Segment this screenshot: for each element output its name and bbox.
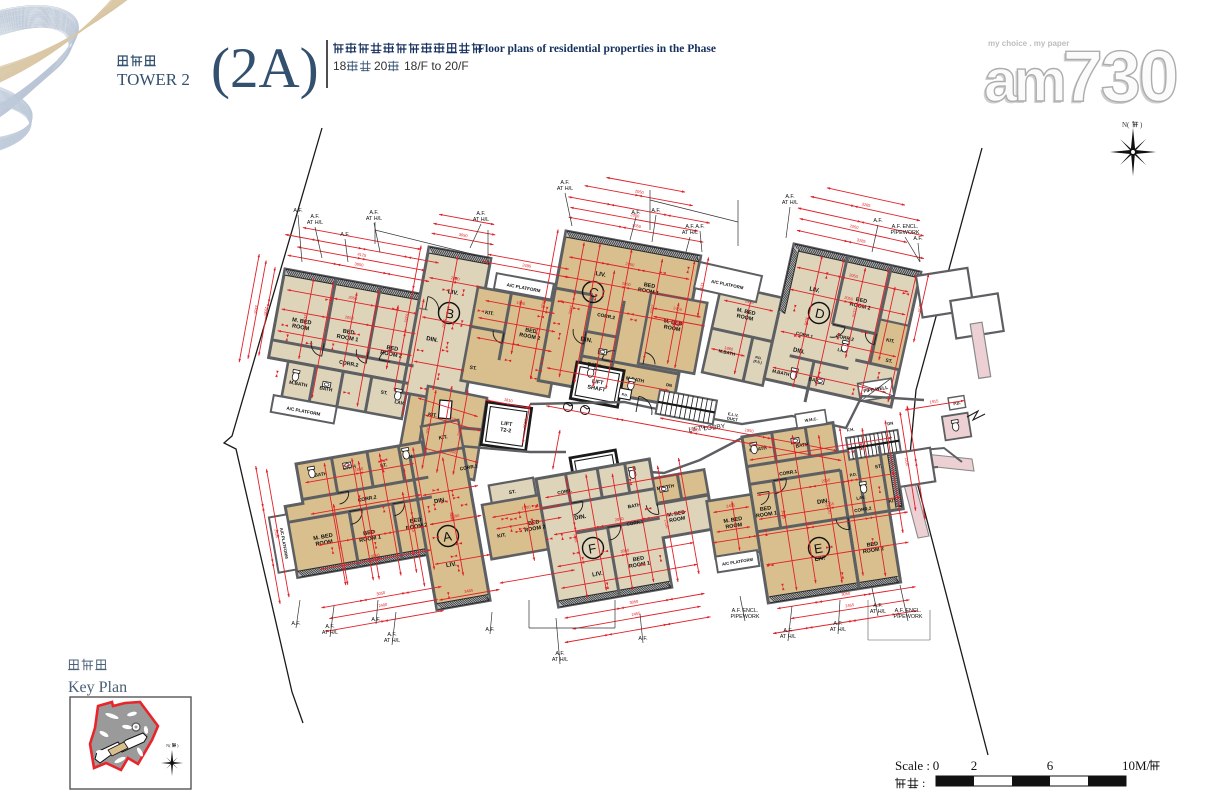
svg-text:2: 2 — [971, 758, 978, 773]
svg-text:A.F.: A.F. — [913, 236, 922, 242]
svg-text:Floor plans of residential pro: Floor plans of residential properties in… — [478, 43, 716, 55]
svg-text:N(: N( — [166, 743, 171, 748]
svg-text:AT H/L: AT H/L — [782, 200, 798, 206]
svg-text:DN: DN — [887, 420, 894, 426]
svg-text:AT H/L: AT H/L — [473, 217, 489, 223]
svg-text:A.F.: A.F. — [340, 232, 349, 238]
svg-text:(2A): (2A) — [211, 37, 319, 100]
svg-text:PIPEWORK: PIPEWORK — [730, 614, 759, 620]
svg-text:A.F.: A.F. — [695, 224, 704, 230]
svg-text:A.F.: A.F. — [873, 218, 882, 224]
svg-text:20: 20 — [374, 59, 388, 73]
svg-text:Key Plan: Key Plan — [68, 679, 127, 696]
svg-text:6: 6 — [1047, 758, 1054, 773]
svg-text:AT H/L: AT H/L — [870, 609, 886, 615]
svg-text:A.F.: A.F. — [631, 210, 640, 216]
svg-text:A.F.: A.F. — [293, 208, 302, 214]
svg-text:10M/: 10M/ — [1122, 758, 1151, 773]
svg-text:A.F.: A.F. — [651, 208, 660, 214]
svg-text:18: 18 — [333, 59, 347, 73]
svg-text:18/F to 20/F: 18/F to 20/F — [404, 59, 469, 73]
svg-text:am730: am730 — [984, 37, 1177, 117]
svg-text:ST.: ST. — [874, 464, 882, 471]
svg-text:ST.: ST. — [508, 489, 516, 496]
svg-text:AT H/L: AT H/L — [366, 216, 382, 222]
svg-text:AT H/L: AT H/L — [307, 220, 323, 226]
svg-text:N(: N( — [1122, 121, 1130, 129]
svg-text:TOWER 2: TOWER 2 — [117, 70, 190, 89]
svg-text:AT H/L: AT H/L — [557, 186, 573, 192]
svg-text:0: 0 — [933, 758, 940, 773]
svg-text:PIPEWORK: PIPEWORK — [893, 614, 922, 620]
svg-text:AT H/L: AT H/L — [682, 230, 698, 236]
svg-text::: : — [922, 776, 925, 790]
svg-text:ST.: ST. — [380, 390, 388, 397]
svg-text:Scale :: Scale : — [895, 758, 930, 773]
